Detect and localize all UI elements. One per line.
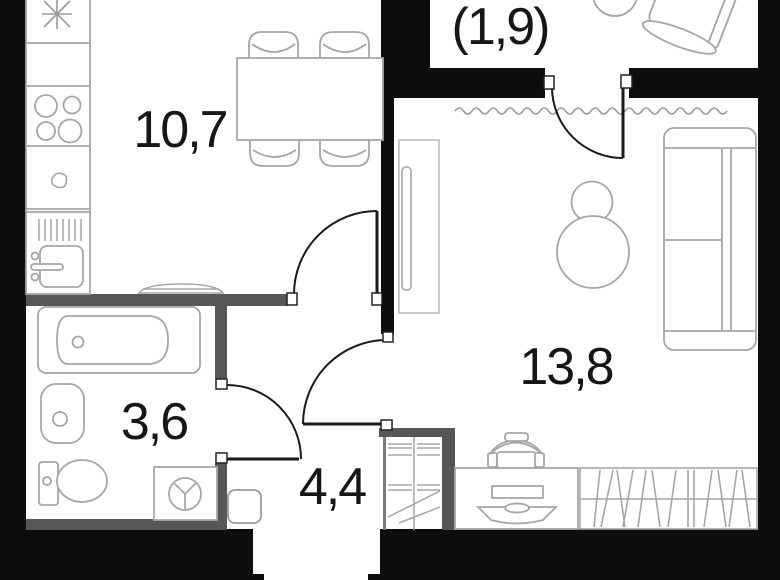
dining-table-and-chairs (237, 32, 383, 166)
kitchen-radiator (139, 284, 223, 293)
bathtub (38, 307, 200, 373)
bathroom-sink (41, 384, 84, 443)
tv-unit (399, 140, 439, 313)
side-table-set (557, 182, 629, 289)
door-swing-arc-icon (294, 211, 377, 294)
dining-table (237, 58, 383, 140)
wall-right (758, 0, 780, 580)
balcony-door (552, 87, 623, 158)
wall-bathroom-right-upper (215, 306, 227, 379)
fridge-snowflake-icon (42, 0, 72, 29)
office-chair-seat (497, 452, 536, 468)
storage-closet-shelves (388, 437, 440, 530)
office-chair-headrest (505, 433, 528, 441)
wall-kitchen-room (381, 0, 394, 334)
office-chair-armrest-left (488, 453, 497, 467)
entrance-jamb-left (253, 574, 264, 580)
door-swing-arc-icon (227, 385, 301, 459)
washing-machine-icon (154, 467, 217, 520)
desk-drawer (492, 486, 543, 498)
balcony-chair (640, 0, 748, 60)
hallway-stool (228, 490, 261, 523)
wall-bottom-right (380, 529, 780, 580)
room-label-kitchen-living: 10,7 (110, 104, 250, 156)
door-swing-arc-icon (303, 340, 387, 424)
wall-bottom-left (0, 529, 253, 580)
kitchen-door (294, 211, 377, 294)
floor-plan: 10,7 (1,9) 13,8 3,6 4,4 (0, 0, 780, 580)
under-desk-chair-cushion (505, 504, 529, 513)
office-chair-armrest-right (535, 453, 544, 467)
wall-kitchen-bottom (26, 294, 287, 306)
wall-closet-right (442, 428, 455, 530)
door-swing-arc-icon (552, 87, 623, 158)
wall-balcony-right (629, 68, 758, 98)
room-label-balcony: (1,9) (430, 1, 570, 53)
bathtub-drain (73, 337, 84, 348)
room-label-living-room: 13,8 (496, 341, 636, 393)
desk-and-chair (455, 433, 578, 529)
toilet-button (43, 477, 51, 485)
toilet (39, 460, 107, 505)
wall-balcony-left (430, 68, 545, 98)
wall-left (0, 0, 26, 580)
sofa (664, 128, 756, 350)
balcony-table (593, 0, 637, 16)
room-label-bathroom: 3,6 (94, 396, 214, 448)
room-label-hallway: 4,4 (272, 461, 392, 513)
tv-screen (402, 167, 411, 290)
wardrobe (580, 468, 757, 529)
large-round-table (557, 216, 629, 288)
living-room-door (303, 340, 387, 424)
window-wave-icon (455, 108, 727, 114)
chair-top-1 (249, 32, 298, 58)
chair-top-2 (320, 32, 369, 58)
entrance-jamb-right (368, 574, 380, 580)
bathroom-door (222, 385, 301, 459)
toilet-bowl (57, 460, 107, 502)
